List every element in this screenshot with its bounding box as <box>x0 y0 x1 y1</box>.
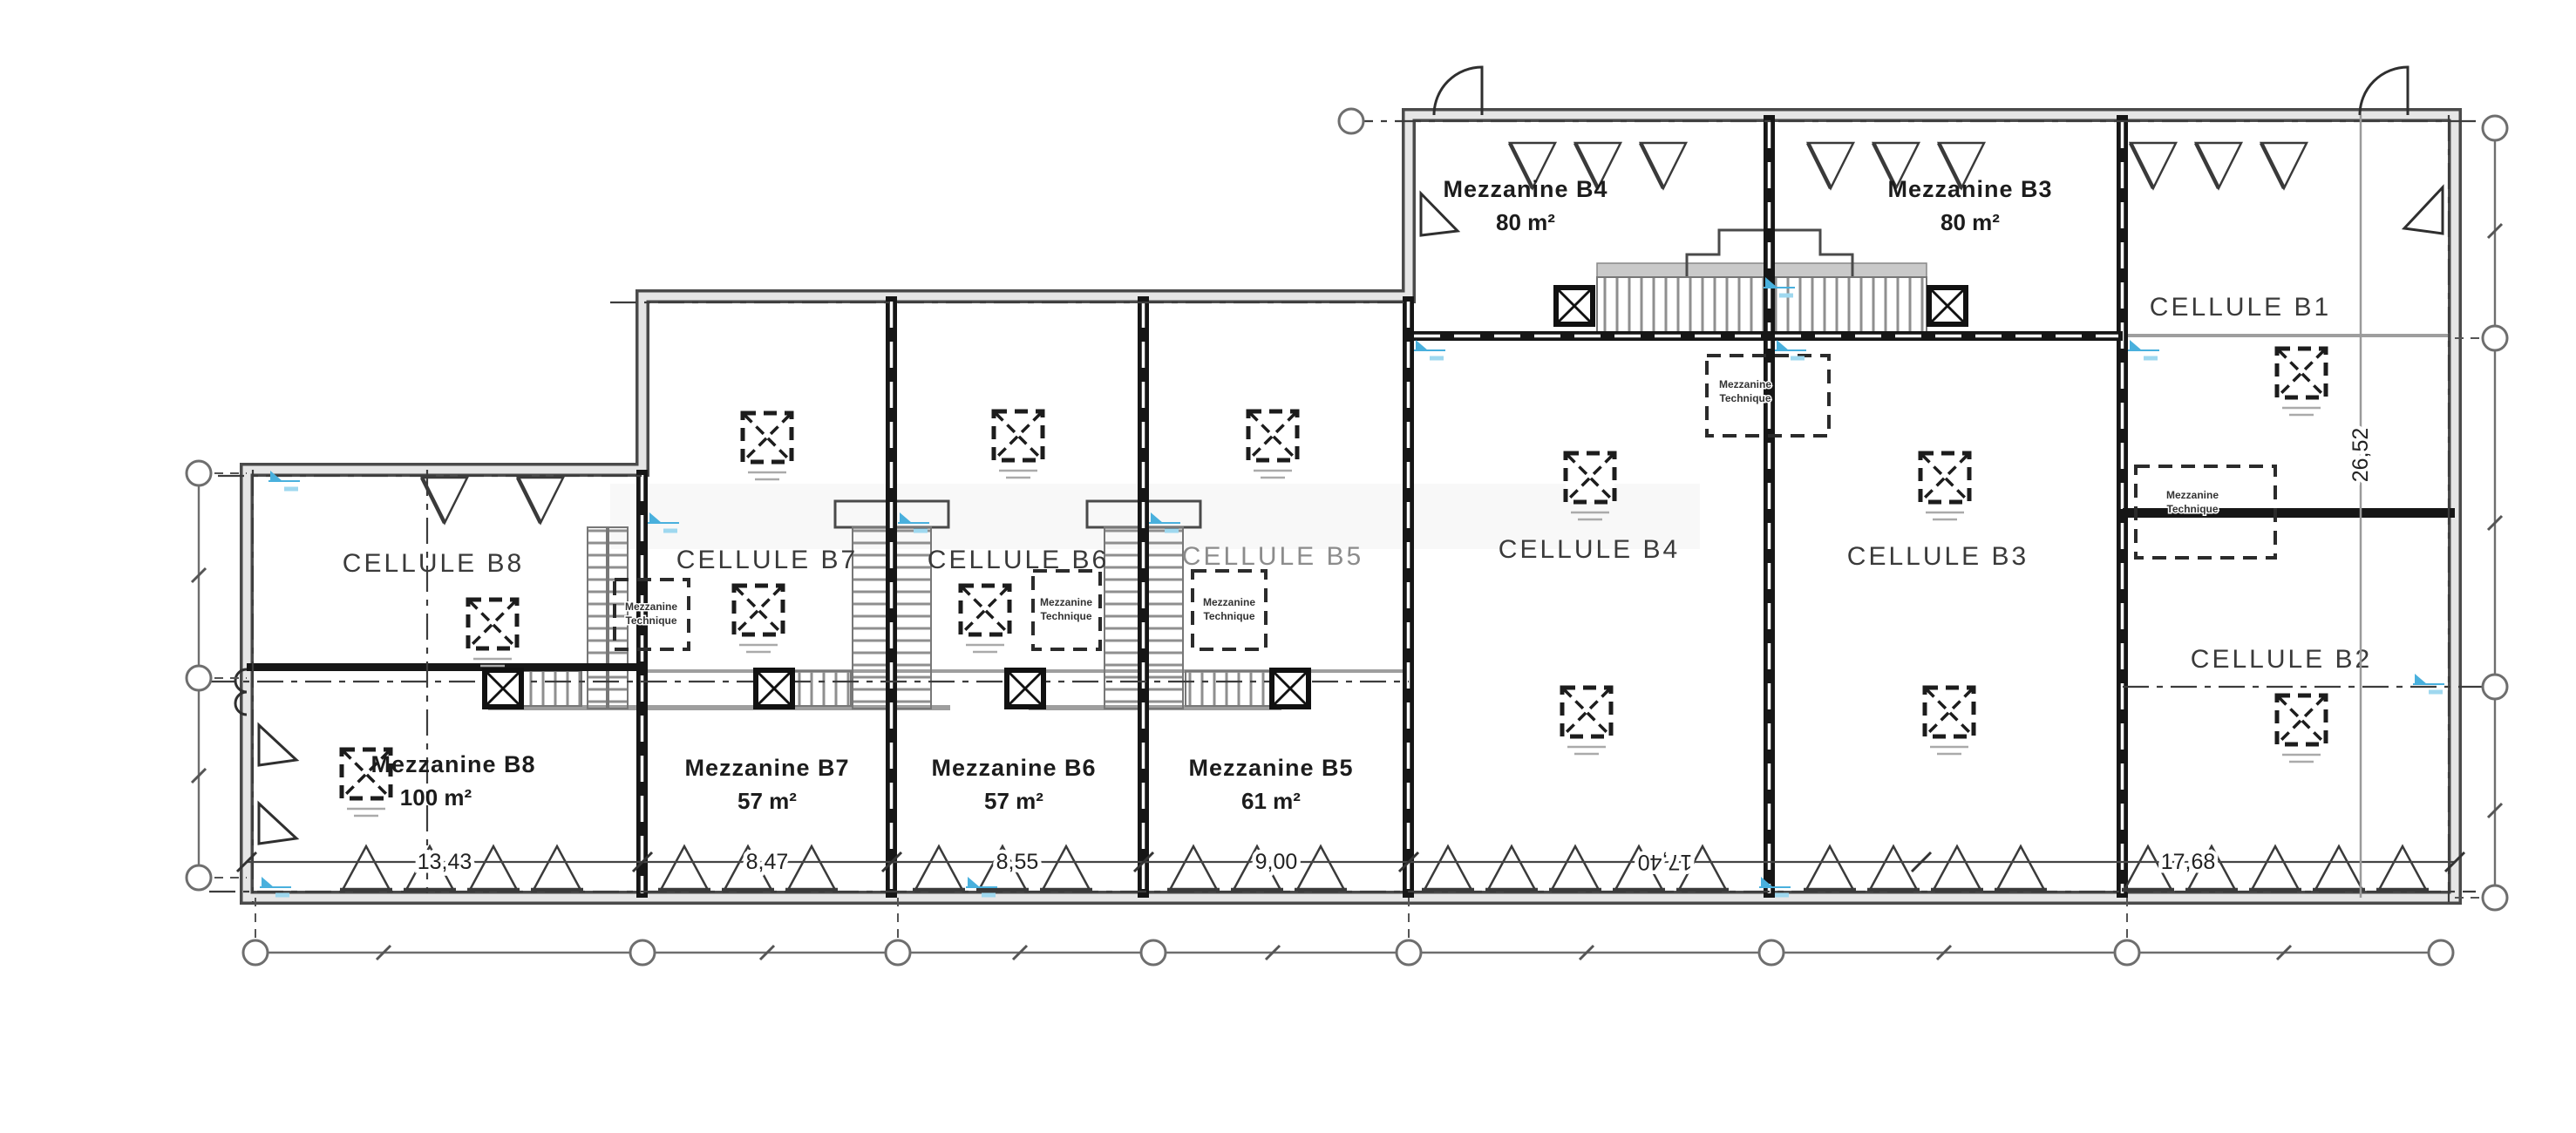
smoke-vent-icon <box>2277 349 2326 415</box>
mezzanine-area-b8: 100 m² <box>400 784 472 811</box>
tech-note-line1: Mezzanine <box>1040 596 1092 608</box>
mezzanine-label-b8: Mezzanine B8 <box>370 751 535 777</box>
tech-note-line2: Technique <box>625 614 676 627</box>
smoke-vent-icon <box>1248 411 1297 478</box>
tech-note-line2: Technique <box>1040 610 1091 622</box>
vent-swing-icon <box>1995 846 2047 890</box>
vent-swing-icon <box>1808 143 1853 188</box>
dimension-label: 17,68 <box>2161 850 2216 874</box>
smoke-vent-icon <box>2277 695 2326 762</box>
level-marker-icon <box>1414 340 1445 358</box>
tech-note-line1: Mezzanine <box>625 600 677 613</box>
mezzanine-label-b3: Mezzanine B3 <box>1887 176 2052 202</box>
hatch-icon <box>1272 670 1308 707</box>
vent-swing-icon <box>467 846 520 890</box>
room-label-b7: CELLULE B7 <box>676 546 858 574</box>
tech-note-line2: Technique <box>1203 610 1254 622</box>
door-swing-icon <box>2360 67 2408 115</box>
mezzanine-area-b7: 57 m² <box>737 788 797 814</box>
tech-note-line1: Mezzanine <box>1719 378 1771 390</box>
hatch-icon <box>756 670 792 707</box>
tech-note-line1: Mezzanine <box>1203 596 1255 608</box>
grid-extension-lines <box>199 338 2495 953</box>
vent-swing-icon <box>2249 846 2301 890</box>
vent-swing-icon <box>1549 846 1601 890</box>
vent-swing-icon <box>2313 846 2365 890</box>
dimension-label: 8,55 <box>996 850 1039 874</box>
mezzanine-area-b4: 80 m² <box>1496 209 1555 235</box>
floorplan-drawing: Mezzanine Technique Mezzanine Technique … <box>0 0 2576 1133</box>
level-marker-icon <box>2128 340 2159 358</box>
vent-swing-icon <box>1931 846 1983 890</box>
vent-swing-icon <box>1641 143 1686 188</box>
smoke-vent-icon <box>743 413 792 479</box>
room-label-b2: CELLULE B2 <box>2191 645 2372 674</box>
mezzanine-area-b6: 57 m² <box>984 788 1043 814</box>
hatch-icon <box>1007 670 1043 707</box>
vent-swing-icon <box>1485 846 1538 890</box>
vent-swing-icon <box>1040 846 1092 890</box>
smoke-vent-icon <box>468 600 517 666</box>
door-swing-icon <box>259 725 296 844</box>
technical-room-note: Mezzanine Technique <box>1193 571 1266 649</box>
hatch-icon <box>1929 288 1966 324</box>
floorplan-page: Mezzanine Technique Mezzanine Technique … <box>0 0 2576 1133</box>
vent-swing-icon <box>2261 143 2307 188</box>
mezzanine-label-b4: Mezzanine B4 <box>1443 176 1607 202</box>
vent-swing-icon <box>1804 846 1856 890</box>
smoke-vent-icon <box>734 586 783 652</box>
tech-note-line1: Mezzanine <box>2166 489 2219 501</box>
vent-swing-icon <box>1422 846 1474 890</box>
vent-swing-icon <box>531 846 583 890</box>
hatch-icon <box>1556 288 1593 324</box>
vent-swing-icon <box>658 846 710 890</box>
tech-note-line2: Technique <box>1719 392 1771 404</box>
vent-swing-icon <box>518 478 563 523</box>
vent-swing-icon <box>785 846 838 890</box>
dimension-label: 17,40 <box>1638 850 1693 874</box>
vent-swing-icon <box>2196 143 2241 188</box>
dimension-label: 8,47 <box>746 850 789 874</box>
vent-swing-icon <box>1867 846 1920 890</box>
dimension-label: 9,00 <box>1255 850 1298 874</box>
stair-mezzanine-b4-b3 <box>1597 230 1927 335</box>
mezzanine-label-b7: Mezzanine B7 <box>684 755 849 781</box>
mezzanine-label-b6: Mezzanine B6 <box>931 755 1096 781</box>
technical-room-note: Mezzanine Technique <box>1033 571 1100 649</box>
doors <box>235 67 2443 844</box>
room-label-b1: CELLULE B1 <box>2150 293 2331 322</box>
vent-swing-icon <box>1295 846 1347 890</box>
mezzanine-area-b3: 80 m² <box>1940 209 2000 235</box>
room-label-b5: CELLULE B5 <box>1182 542 1363 571</box>
room-label-b3: CELLULE B3 <box>1847 542 2029 571</box>
dimension-label: 13,43 <box>418 850 472 874</box>
hatch-icon <box>485 670 521 707</box>
level-marker-icon <box>2413 674 2444 692</box>
vent-swing-icon <box>2131 143 2176 188</box>
door-swing-icon <box>2404 187 2443 234</box>
vent-swing-icon <box>913 846 965 890</box>
smoke-vent-icon <box>961 586 1009 652</box>
vent-swing-icon <box>340 846 392 890</box>
smoke-vent-icon <box>1920 453 1969 519</box>
door-swing-icon <box>1434 67 1482 115</box>
mezzanine-label-b5: Mezzanine B5 <box>1188 755 1353 781</box>
smoke-vent-icon <box>994 411 1043 478</box>
dimension-label-vertical: 26,52 <box>2348 428 2373 483</box>
room-label-b6: CELLULE B6 <box>928 546 1109 574</box>
mezzanine-area-b5: 61 m² <box>1241 788 1301 814</box>
room-label-b8: CELLULE B8 <box>343 549 524 578</box>
smoke-vent-icon <box>1925 688 1974 754</box>
vent-swing-icon <box>1167 846 1220 890</box>
vent-swing-icon <box>422 478 467 523</box>
tech-note-line2: Technique <box>2166 503 2218 515</box>
room-label-b4: CELLULE B4 <box>1499 535 1680 564</box>
vent-swing-icon <box>2376 846 2429 890</box>
smoke-vent-icon <box>1562 688 1611 754</box>
